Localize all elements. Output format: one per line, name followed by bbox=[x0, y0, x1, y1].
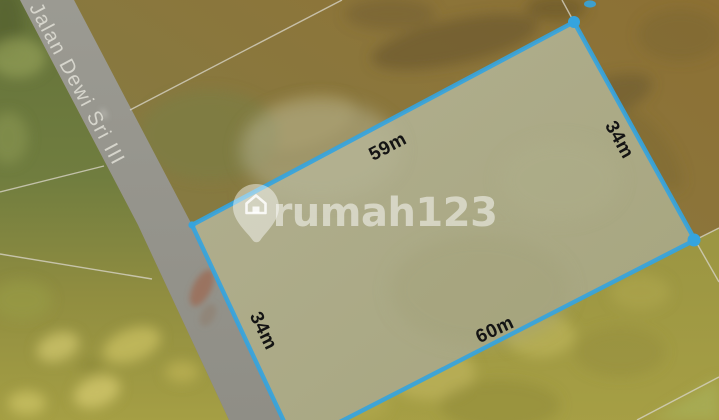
map-image: 59m 34m 60m 34m Jalan Dewi Sri III rumah… bbox=[0, 0, 719, 420]
watermark-brand-text: rumah123 bbox=[273, 190, 498, 236]
marker-dot bbox=[584, 0, 596, 7]
watermark: rumah123 bbox=[233, 184, 497, 242]
satellite-map-canvas[interactable]: 59m 34m 60m 34m Jalan Dewi Sri III rumah… bbox=[0, 0, 719, 420]
